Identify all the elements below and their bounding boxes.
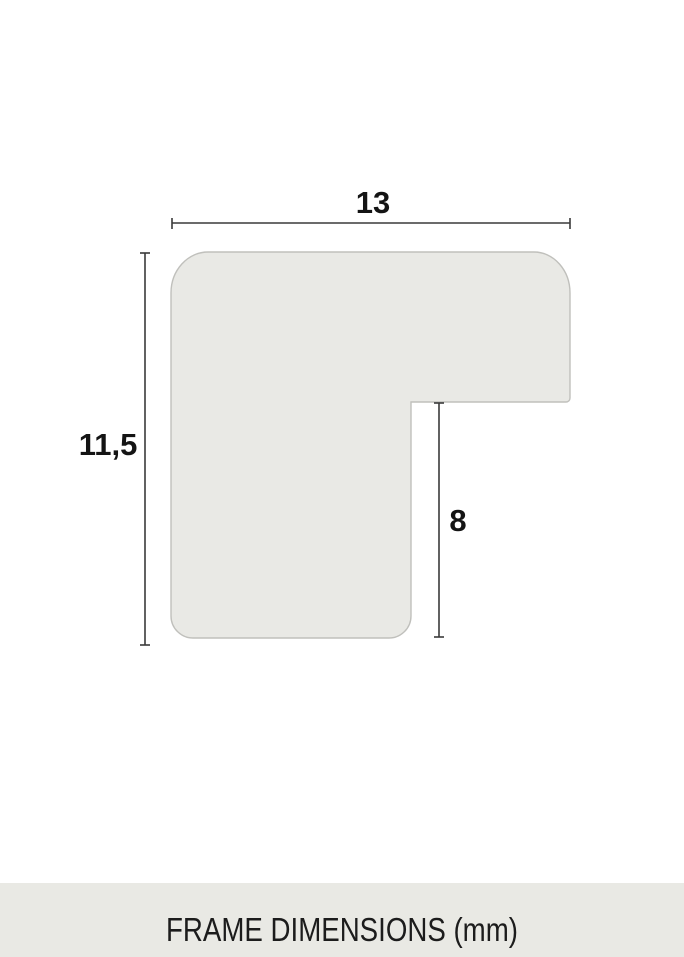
svg-text:11,5: 11,5 bbox=[79, 427, 138, 462]
svg-text:8: 8 bbox=[449, 503, 466, 538]
svg-text:FRAME DIMENSIONS (mm): FRAME DIMENSIONS (mm) bbox=[166, 911, 518, 948]
svg-text:13: 13 bbox=[356, 185, 390, 220]
